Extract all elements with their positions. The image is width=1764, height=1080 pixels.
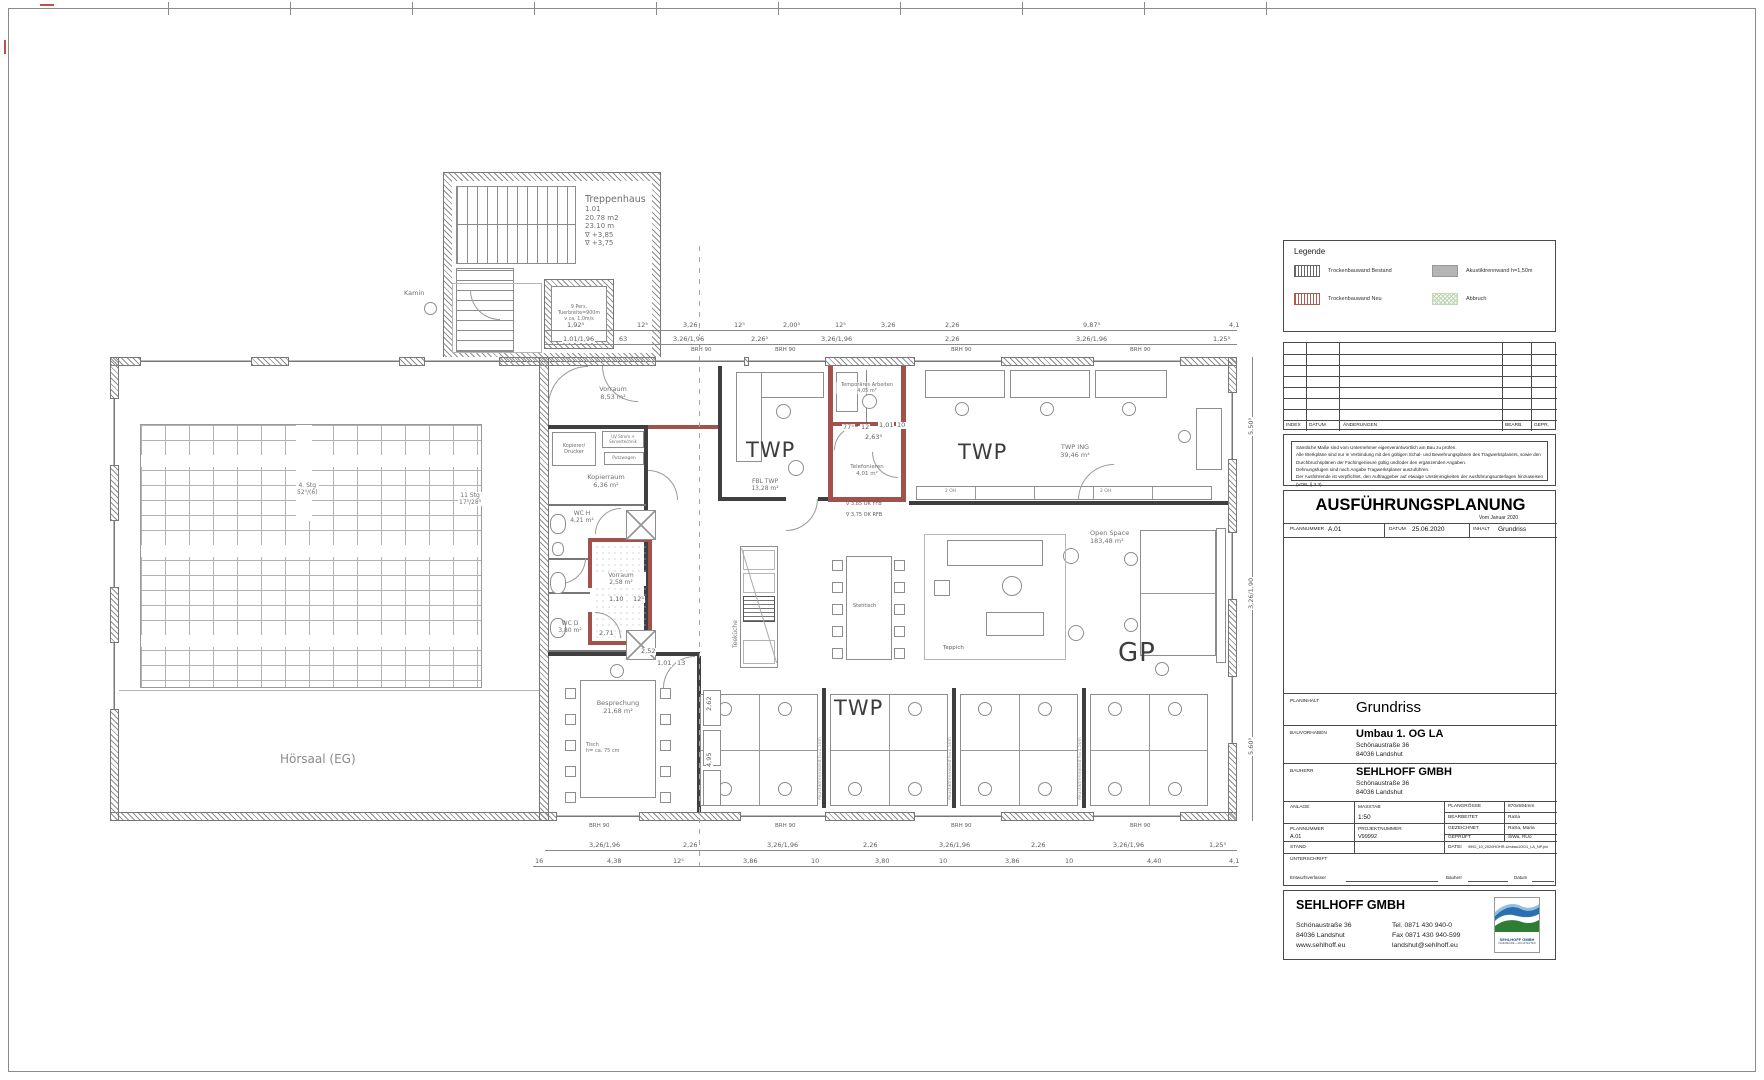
- tb-line: [1444, 801, 1445, 853]
- tb-line: [1284, 853, 1557, 854]
- seating-aisle: [141, 635, 481, 647]
- stair-landing-line: [456, 224, 576, 225]
- dim-label: 2,63⁵: [864, 434, 883, 441]
- logo-waves-icon: [1495, 898, 1539, 932]
- server-label: Servertechnik: [603, 440, 643, 445]
- room-number: 1.01: [585, 205, 646, 213]
- cabinet-row: [916, 486, 1212, 500]
- field-value: 1:50: [1358, 814, 1371, 821]
- sheet-tick: [1022, 2, 1023, 15]
- field-label: BEARBEITET: [1448, 815, 1478, 820]
- new-wall: [648, 538, 652, 645]
- zone-label-twp: TWP: [832, 696, 885, 721]
- contact-line: landshut@sehlhoff.eu: [1392, 941, 1460, 951]
- revision-table: INDEX DATUM ÄNDERUNGEN BEARB. GEPR.: [1283, 342, 1556, 430]
- company-box: SEHLHOFF GMBH Schönaustraße 36 84036 Lan…: [1283, 890, 1556, 960]
- stair-note-2: 11 Stg 17⁵/28⁵: [458, 492, 482, 506]
- dim-label: 63: [618, 336, 628, 343]
- new-wall: [828, 366, 833, 502]
- room-label-block: Vorraum 8,53 m²: [568, 386, 658, 402]
- sheet-title: AUSFÜHRUNGSPLANUNG: [1284, 496, 1557, 515]
- room-name: Vorraum: [596, 572, 646, 579]
- room-area: 3,80 m²: [548, 627, 592, 634]
- table-line: [1306, 343, 1307, 431]
- dim-label: 9,87⁵: [1082, 322, 1101, 329]
- dim-label: 3,86: [742, 858, 758, 865]
- registration-mark: [40, 4, 54, 6]
- window: [288, 357, 400, 366]
- field-label: UNTERSCHRIFT: [1290, 857, 1327, 862]
- legend-label: Trockenbauwand Neu: [1328, 296, 1382, 302]
- window: [556, 812, 640, 821]
- chimney-icon: [424, 302, 437, 315]
- chair: [565, 688, 576, 699]
- room-area: 2,58 m²: [596, 579, 646, 586]
- dim-label: 3,26/1,96: [820, 336, 853, 343]
- tb-line: [1284, 763, 1557, 764]
- room-name: WC D: [548, 620, 592, 627]
- notes-inner: Sämtliche Maße sind vom Unternehmer eige…: [1291, 441, 1548, 481]
- shower: [626, 630, 656, 660]
- sheet-tick: [168, 2, 169, 15]
- window: [140, 357, 252, 366]
- sheet-tick: [412, 2, 413, 15]
- chair: [778, 702, 792, 716]
- sheet-tick: [1144, 2, 1145, 15]
- field-value: SiWa, RUo: [1508, 835, 1532, 840]
- level-mark: ∇ +3,75: [585, 239, 646, 247]
- stair-note-line: 17⁵/28⁵: [459, 499, 481, 506]
- chair: [848, 782, 862, 796]
- field-value: A.01: [1328, 526, 1341, 533]
- legend-box: Legende Trockenbauwand Bestand Trockenba…: [1283, 240, 1556, 332]
- chair: [832, 560, 843, 571]
- acoustic-wall-label: Akustiktrennwand h=1,50m: [948, 737, 953, 800]
- field-value: 25.06.2020: [1412, 526, 1445, 533]
- kitchen-unit: [743, 573, 775, 593]
- registration-mark: [4, 40, 6, 54]
- dim-label: 1,92⁵: [566, 322, 585, 329]
- project-name: Umbau 1. OG LA: [1356, 728, 1443, 740]
- chair: [565, 740, 576, 751]
- partition-wall: [718, 366, 722, 501]
- room-label-block: Besprechung 21,68 m²: [582, 700, 654, 716]
- legend-swatch-acoustic-wall: [1432, 265, 1458, 277]
- field-label: PLANNUMMER: [1290, 527, 1324, 532]
- dim-label: 2,62: [706, 696, 713, 712]
- sheet-tick: [1266, 2, 1267, 15]
- chair: [908, 782, 922, 796]
- dim-label: 1,01/1,96: [562, 336, 595, 343]
- server-box: UV Strom + Servertechnik: [602, 431, 644, 448]
- room-label: Hörsaal (EG): [280, 752, 356, 766]
- table-note: Tisch h= ca. 75 cm: [586, 742, 620, 754]
- sideboard: [1216, 528, 1226, 663]
- chair: [978, 782, 992, 796]
- dim-label: 2,26: [682, 842, 698, 849]
- tb-line: [1284, 725, 1557, 726]
- note-line: Durchbruchsplänen der Fachingenieure gül…: [1296, 459, 1543, 466]
- company-logo: SEHLHOFF GMBH INGENIEURE + ARCHITEKTEN: [1494, 897, 1540, 953]
- table-line: [1284, 420, 1557, 421]
- urinal: [552, 542, 564, 556]
- window: [748, 357, 826, 366]
- sill-height-label: BRH 90: [588, 824, 610, 830]
- tb-line: [1284, 801, 1557, 802]
- logo-subtitle: INGENIEURE + ARCHITEKTEN: [1495, 942, 1539, 945]
- room-name: Telefonieren: [836, 464, 898, 471]
- dim-label: 4,1: [1228, 858, 1240, 865]
- chair: [1068, 625, 1084, 641]
- sill-height-label: BRH 90: [774, 824, 796, 830]
- cleaning-cart-label: Putzwagen: [612, 456, 635, 461]
- table-line: [1284, 398, 1557, 399]
- window: [110, 642, 119, 710]
- field-label: GEPRÜFT: [1448, 835, 1471, 840]
- stair-note-1: 4. Stg 52⁵/(6): [296, 482, 319, 496]
- sill-height-label: BRH 90: [950, 824, 972, 830]
- field-label: PLANINHALT: [1290, 699, 1319, 704]
- cabinet-label: 2 OH: [945, 489, 956, 494]
- window: [655, 357, 745, 366]
- chair: [894, 582, 905, 593]
- dim-label: 77⁵: [842, 424, 855, 431]
- contact-line: Tel. 0871 430 940-0: [1392, 921, 1460, 931]
- address-line: Schönaustraße 36: [1296, 921, 1352, 931]
- chair: [1038, 782, 1052, 796]
- room-label-block: TWP ING 39,46 m²: [1040, 444, 1110, 460]
- chair: [1122, 402, 1136, 416]
- new-wall: [588, 538, 592, 588]
- room-label-block: Temporäres Arbeiten 4,05 m²: [836, 382, 898, 394]
- dimension-line: [545, 344, 1237, 345]
- rug-label: Teppich: [942, 646, 965, 652]
- dim-label: 3,26: [682, 322, 698, 329]
- elevator-car: 9 Pers. Tuerbreite=900m v ca. 1,0m/s: [551, 286, 607, 342]
- room-label-block: FBL TWP 13,28 m²: [730, 478, 800, 492]
- cabinet: [703, 770, 721, 806]
- dim-label: 3,86: [1004, 858, 1020, 865]
- chair: [862, 394, 877, 409]
- partition-wall: [548, 504, 646, 506]
- dim-label: 1,01: [878, 422, 894, 429]
- room-area: 4,05 m²: [836, 388, 898, 394]
- dim-label: 10: [810, 858, 820, 865]
- title-block: AUSFÜHRUNGSPLANUNG Vom Januar 2020 PLANN…: [1283, 490, 1556, 886]
- dim-label: 3,26/1,96: [588, 842, 621, 849]
- field-value: RaSa, Maria: [1508, 826, 1535, 831]
- field-value: RaSa: [1508, 815, 1520, 820]
- field-label: DATEI: [1448, 845, 1462, 850]
- room-name: WC H: [560, 510, 604, 517]
- chair: [894, 648, 905, 659]
- dim-label: 2,26: [862, 842, 878, 849]
- room-area: 6,36 m²: [566, 482, 646, 490]
- chair: [1108, 782, 1122, 796]
- field-label: DATUM: [1389, 527, 1406, 532]
- col-header: BEARB.: [1505, 423, 1523, 428]
- col-header: INDEX: [1286, 423, 1301, 428]
- room-label-block: Telefonieren 4,01 m²: [836, 464, 898, 477]
- chair: [1168, 782, 1182, 796]
- chair: [660, 792, 671, 803]
- zone-label-twp: TWP: [746, 438, 795, 463]
- sheet-tick: [900, 2, 901, 15]
- chair: [565, 792, 576, 803]
- legend-label: Abbruch: [1466, 296, 1487, 302]
- signature-label: Bauherr: [1446, 875, 1462, 880]
- window: [110, 398, 119, 466]
- dim-label: 4,1: [1228, 322, 1240, 329]
- field-value: A.01: [1290, 834, 1301, 840]
- note-line: h= ca. 75 cm: [586, 748, 620, 754]
- table-line: [1284, 376, 1557, 377]
- company-contact: Tel. 0871 430 940-0 Fax 0871 430 940-599…: [1392, 921, 1460, 952]
- window: [1228, 392, 1237, 460]
- tb-line: [1354, 801, 1355, 853]
- room-area: 8,53 m²: [568, 394, 658, 402]
- window: [1228, 532, 1237, 600]
- room-label: Treppenhaus: [585, 194, 646, 205]
- field-label: INHALT: [1473, 527, 1490, 532]
- dim-label: 3,26/1,90: [1248, 577, 1255, 610]
- legend-swatch-existing-wall: [1294, 265, 1320, 277]
- level-mark: ∇ +3,85: [585, 231, 646, 239]
- dim-label: 1,25⁵: [1212, 336, 1231, 343]
- client-address: Schönaustraße 36: [1356, 780, 1409, 787]
- dim-label: 3,26/1,96: [938, 842, 971, 849]
- legend-swatch-new-wall: [1294, 293, 1320, 305]
- shower: [626, 510, 656, 540]
- dim-label: 2,00⁵: [782, 322, 801, 329]
- company-name: SEHLHOFF GMBH: [1296, 898, 1405, 912]
- room-area: 39,46 m²: [1040, 452, 1110, 460]
- window: [1093, 357, 1181, 366]
- table-line: [1339, 343, 1340, 431]
- partition-wall: [548, 425, 648, 429]
- chair: [832, 648, 843, 659]
- sill-height-label: BRH 90: [774, 348, 796, 354]
- stair-note-line: 4. Stg: [297, 482, 318, 489]
- dimension-line: [545, 850, 1237, 851]
- room-label: Teeküche: [732, 620, 739, 648]
- side-table: [934, 580, 950, 596]
- stage-edge-line: [119, 690, 539, 691]
- note-line: Der Ausführende ist verpflichtet, den Au…: [1296, 473, 1543, 488]
- dim-label: 2,52: [640, 648, 656, 655]
- signature-line: [1468, 881, 1508, 882]
- stair-flight-upper: [456, 186, 576, 264]
- room-name: FBL TWP: [730, 478, 800, 485]
- chair: [955, 402, 969, 416]
- dim-label: 2,71: [598, 630, 614, 637]
- chair: [894, 604, 905, 615]
- room-label-block: WC H 4,21 m²: [560, 510, 604, 524]
- chair: [832, 626, 843, 637]
- dim-label: 1,25⁵: [1208, 842, 1227, 849]
- contact-line: Fax 0871 430 940-599: [1392, 931, 1460, 941]
- dim-label: 13: [676, 660, 686, 667]
- dim-label: 12⁵: [632, 596, 645, 603]
- tb-line: [1469, 523, 1470, 537]
- chair: [832, 582, 843, 593]
- field-value: 9992_10_2020HOHR-Umbau1OG1_LA_NP.pln: [1468, 845, 1548, 849]
- table-line: [1284, 387, 1557, 388]
- col-header: DATUM: [1309, 423, 1326, 428]
- chair: [1124, 552, 1138, 566]
- chair: [1155, 662, 1169, 676]
- room-label-block: WC D 3,80 m²: [548, 620, 592, 634]
- col-header: ÄNDERUNGEN: [1343, 423, 1377, 428]
- dim-label: 10: [938, 858, 948, 865]
- room-area: 4,01 m²: [836, 471, 898, 478]
- sheet-tick: [778, 2, 779, 15]
- dim-label: 2,26: [944, 336, 960, 343]
- table-label: Stehtisch: [852, 604, 877, 609]
- room-area: 20.78 m2: [585, 214, 646, 222]
- dim-label: 3,80: [874, 858, 890, 865]
- sheet-tick: [534, 2, 535, 15]
- dim-label: 4,40: [1146, 858, 1162, 865]
- desk: [1095, 370, 1167, 398]
- dimension-line: [545, 330, 1237, 331]
- coffee-table: [1002, 576, 1022, 596]
- chair: [1040, 402, 1054, 416]
- signature-line: [1346, 881, 1438, 882]
- sofa: [986, 612, 1044, 636]
- chair: [1038, 702, 1052, 716]
- tb-line: [1284, 841, 1557, 842]
- table-line: [1531, 343, 1532, 431]
- dim-label: 16: [534, 858, 544, 865]
- tb-line: [1444, 812, 1557, 813]
- chair: [908, 702, 922, 716]
- col-header: GEPR.: [1534, 423, 1549, 428]
- acoustic-wall: [909, 501, 1228, 505]
- sheet-tick: [290, 2, 291, 15]
- signature-label: Entwurfsverfasser: [1290, 875, 1326, 880]
- dim-label: 1,10: [608, 596, 624, 603]
- stair-note-line: 11 Stg: [459, 492, 481, 499]
- window: [1093, 812, 1181, 821]
- dim-label: 5,60⁵: [1248, 737, 1255, 756]
- field-label: STAND: [1290, 845, 1306, 850]
- new-wall: [648, 425, 720, 429]
- chair: [778, 782, 792, 796]
- dim-label: 4,95: [706, 752, 713, 768]
- chair: [1108, 702, 1122, 716]
- seating-aisle: [141, 545, 481, 557]
- lecture-hall-label: Hörsaal (EG): [280, 748, 356, 767]
- sink: [550, 572, 566, 594]
- field-label: PROJEKTNUMMER: [1358, 827, 1402, 832]
- chair: [660, 766, 671, 777]
- dim-label: 2,26⁵: [750, 336, 769, 343]
- dim-label: 2,26: [944, 322, 960, 329]
- field-label: GEZEICHNET: [1448, 826, 1479, 831]
- legend-label: Akustiktrennwand h=1,50m: [1466, 268, 1533, 274]
- notes-box: Sämtliche Maße sind vom Unternehmer eige…: [1283, 434, 1556, 486]
- project-address: 84036 Landshut: [1356, 751, 1403, 758]
- window: [424, 357, 500, 366]
- window: [740, 812, 826, 821]
- zone-label-gp: GP: [1118, 638, 1156, 669]
- chair: [660, 688, 671, 699]
- exterior-wall-bottom: [110, 812, 1237, 821]
- field-label: BAUVORHABEN: [1290, 731, 1327, 736]
- signature-label: Datum: [1514, 875, 1527, 880]
- field-value: 870x594mm: [1508, 804, 1534, 809]
- window: [914, 812, 1002, 821]
- tb-line: [1284, 693, 1557, 694]
- room-label-block: Open Space 183,48 m²: [1090, 530, 1129, 546]
- field-label: PLANGRÖSSE: [1448, 804, 1481, 809]
- chair: [978, 702, 992, 716]
- sheet-tick: [656, 2, 657, 15]
- chair: [894, 560, 905, 571]
- dim-label: 3,26/1,96: [1075, 336, 1108, 343]
- room-label-block: Kopierraum 6,36 m²: [566, 474, 646, 490]
- window: [1228, 676, 1237, 744]
- dim-label: 12⁵: [636, 322, 649, 329]
- window: [110, 520, 119, 588]
- new-wall: [901, 366, 906, 502]
- zone-label-twp: TWP: [958, 440, 1007, 465]
- drawing-sheet: Treppenhaus 1.01 20.78 m2 23.10 m ∇ +3,8…: [0, 0, 1764, 1080]
- cleaning-cart-box: Putzwagen: [604, 452, 644, 465]
- dim-label: 12⁵: [733, 322, 746, 329]
- chair: [660, 740, 671, 751]
- dim-label: 3,26/1,96: [1112, 842, 1145, 849]
- acoustic-wall-label: Akustiktrennwand h=1,50m: [1078, 737, 1083, 800]
- sill-height-label: BRH 90: [950, 348, 972, 354]
- dim-label: 3,26: [880, 322, 896, 329]
- window: [914, 357, 1002, 366]
- sofa: [947, 540, 1043, 566]
- chair: [1124, 618, 1138, 632]
- sill-height-label: BRH 90: [1129, 824, 1151, 830]
- room-perimeter: 23.10 m: [585, 222, 646, 230]
- tb-line: [1384, 523, 1385, 537]
- desk: [1010, 370, 1090, 398]
- table-line: [1284, 354, 1557, 355]
- tb-line: [1284, 537, 1557, 538]
- stairwell-label-block: Treppenhaus 1.01 20.78 m2 23.10 m ∇ +3,8…: [585, 194, 646, 247]
- dim-label: 12⁵: [834, 322, 847, 329]
- dim-label: 4,38: [606, 858, 622, 865]
- chair: [565, 766, 576, 777]
- chair: [610, 664, 624, 678]
- sill-height-label: BRH 90: [690, 348, 712, 354]
- dim-label: 10: [1064, 858, 1074, 865]
- chair: [776, 404, 791, 419]
- dim-label: 12: [860, 424, 870, 431]
- signature-line: [1532, 881, 1554, 882]
- chimney-label: Kamin: [404, 290, 424, 298]
- dim-label: 3,26/1,96: [672, 336, 705, 343]
- room-label-block: Vorraum 2,58 m²: [596, 572, 646, 586]
- field-value: Grundriss: [1498, 526, 1526, 533]
- table-line: [1502, 343, 1503, 431]
- chair: [660, 714, 671, 725]
- legend-title: Legende: [1294, 247, 1325, 256]
- dim-label: 1,01: [656, 660, 672, 667]
- chair: [894, 626, 905, 637]
- room-area: 4,21 m²: [560, 517, 604, 524]
- note-line: Alle Werkpläne sind nur in Verbindung mi…: [1296, 451, 1543, 458]
- tb-line: [1504, 801, 1505, 841]
- desk: [925, 370, 1005, 398]
